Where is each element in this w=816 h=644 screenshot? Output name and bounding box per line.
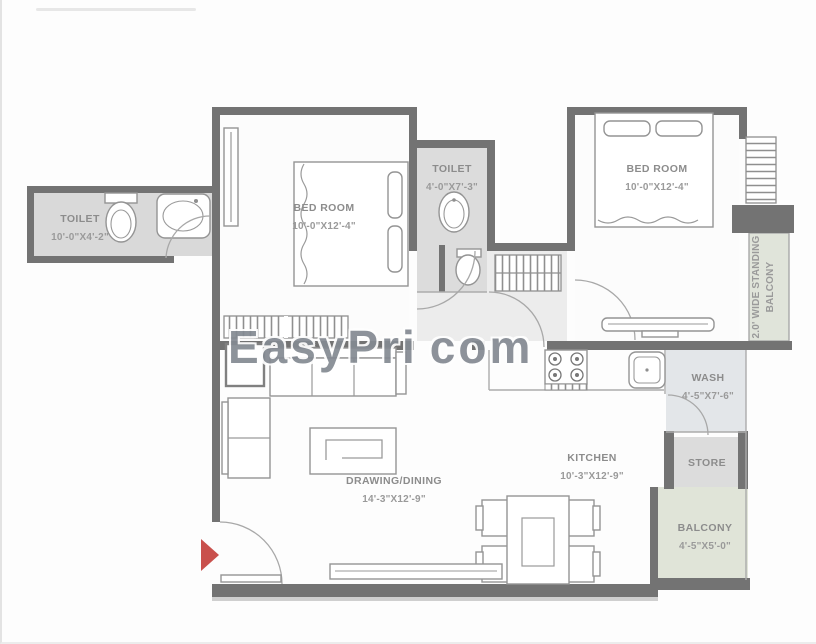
drawing-dining-label: DRAWING/DINING (346, 475, 442, 487)
wash-dims: 4'-5"X7'-6" (682, 391, 734, 402)
wall-segment (567, 107, 575, 251)
chair (482, 500, 508, 536)
entrance-arrow-icon (201, 539, 219, 571)
watermark: EasyPricom (228, 320, 533, 374)
pillow (604, 121, 650, 136)
wall-segment (487, 243, 575, 251)
balcony-label: BALCONY (678, 522, 733, 534)
bedroom2-label: BED ROOM (627, 163, 688, 175)
wall-segment (409, 140, 495, 148)
chair (568, 546, 594, 582)
watermark-right: com (430, 321, 534, 373)
toilet-bowl-icon (456, 255, 480, 285)
wall-segment (650, 578, 750, 590)
wall-segment (212, 107, 220, 522)
store-label: STORE (688, 457, 726, 469)
washbasin-icon (439, 192, 469, 232)
wall-segment (27, 256, 174, 263)
dresser-drawer (642, 331, 678, 337)
toilet1-dims: 10'-0"X4'-2" (51, 232, 109, 243)
watermark-left: EasyPri (228, 321, 418, 373)
wall-segment (409, 107, 417, 251)
drawing-dining-dims: 14'-3"X12'-9" (362, 494, 426, 505)
wall-segment (547, 341, 792, 350)
kitchen-dims: 10'-3"X12'-9" (560, 471, 624, 482)
coffee-table (310, 428, 396, 474)
chair-back (593, 506, 600, 530)
pillow (388, 172, 402, 218)
toilet-bowl-icon (106, 202, 136, 242)
wall-segment (212, 107, 417, 115)
bedroom1-dims: 10'-0"X12'-4" (292, 221, 356, 232)
toilet1-label: TOILET (60, 213, 100, 225)
standing-balcony-label-line2: BALCONY (765, 261, 776, 312)
scan-artifact (36, 8, 196, 11)
chair (568, 500, 594, 536)
chair-back (476, 506, 483, 530)
wash-label: WASH (691, 372, 724, 384)
kitchen-label: KITCHEN (567, 452, 616, 464)
wall-segment (27, 186, 34, 263)
wall-segment (732, 205, 794, 233)
standing-balcony-label-line1: 2.0' WIDE STANDING (751, 235, 762, 338)
bedroom1-label: BED ROOM (294, 202, 355, 214)
wall-segment (664, 431, 674, 489)
toilet2-label: TOILET (432, 163, 472, 175)
wall-shadow (212, 597, 658, 601)
balcony-dims: 4'-5"X5'-0" (679, 541, 731, 552)
wall-segment (27, 186, 214, 193)
toilet2-dims: 4'-0"X7'-3" (426, 182, 478, 193)
bedroom2-dims: 10'-0"X12'-4" (625, 182, 689, 193)
dining-table (507, 496, 569, 584)
wall-segment (212, 584, 658, 597)
wall-segment (487, 140, 495, 251)
pillow (656, 121, 702, 136)
floor-plan-page: TOILET 10'-0"X4'-2" BED ROOM 10'-0"X12'-… (0, 0, 816, 644)
wall-segment (439, 245, 445, 292)
sofa-back (222, 402, 228, 474)
pillow (388, 226, 402, 272)
wall-segment (739, 107, 747, 139)
chair-back (593, 552, 600, 576)
stove-panel (545, 384, 587, 390)
bedroom2-window-hatch (746, 137, 776, 203)
wall-segment (650, 487, 658, 582)
entrance-door-leaf (221, 575, 281, 582)
